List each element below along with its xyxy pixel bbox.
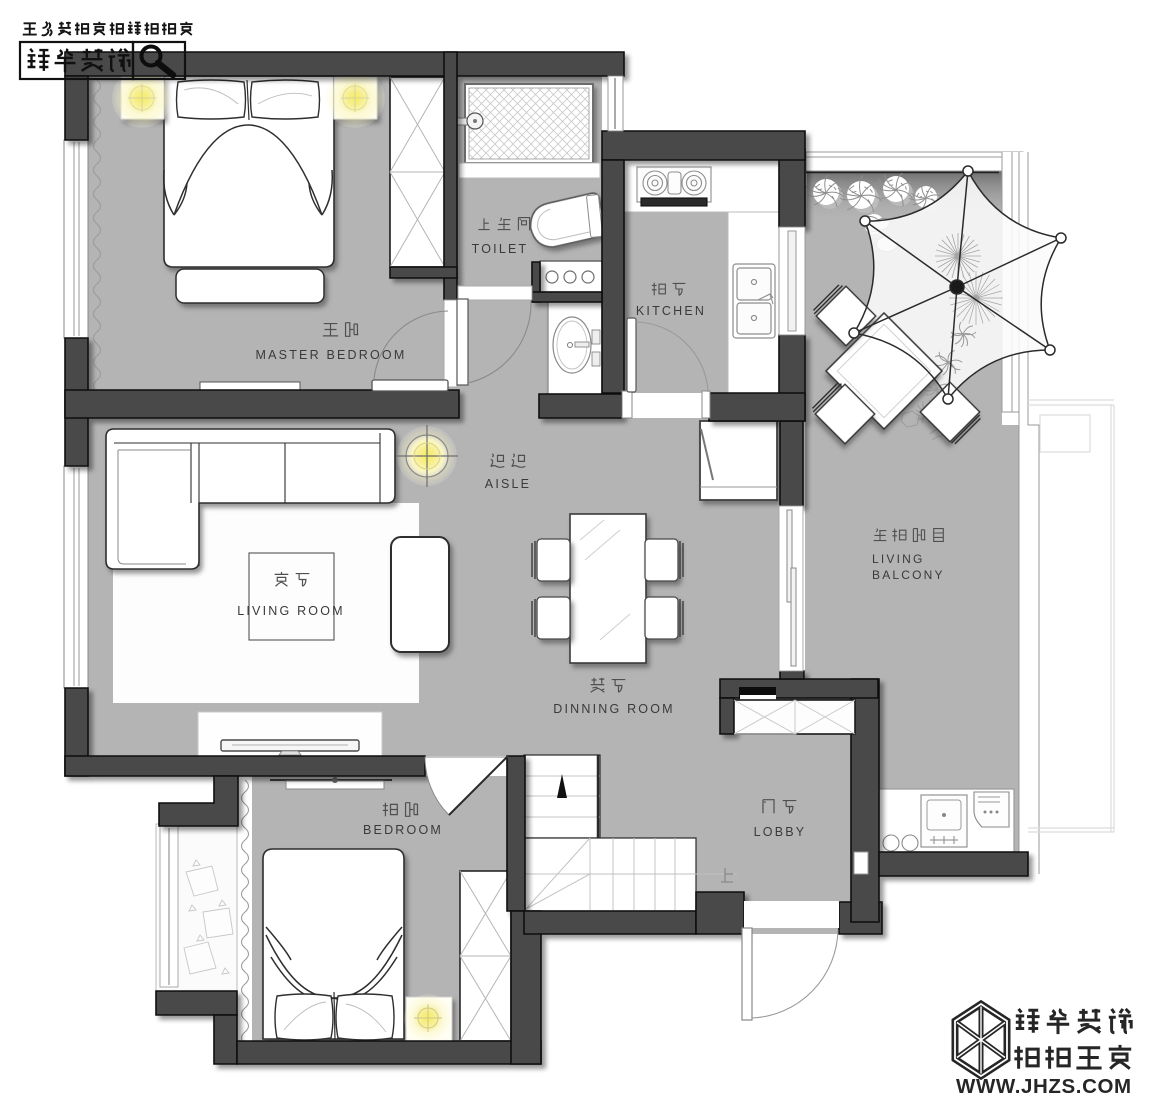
svg-text:LOBBY: LOBBY <box>754 825 807 839</box>
svg-text:KITCHEN: KITCHEN <box>636 304 706 318</box>
svg-text:TOILET: TOILET <box>472 242 529 256</box>
svg-text:LIVING ROOM: LIVING ROOM <box>237 604 345 618</box>
svg-text:WWW.JHZS.COM: WWW.JHZS.COM <box>956 1075 1132 1098</box>
svg-text:BALCONY: BALCONY <box>872 568 945 582</box>
svg-text:AISLE: AISLE <box>485 477 531 491</box>
svg-text:MASTER BEDROOM: MASTER BEDROOM <box>256 348 407 362</box>
svg-text:DINNING ROOM: DINNING ROOM <box>553 702 675 716</box>
svg-text:BEDROOM: BEDROOM <box>363 823 443 837</box>
svg-text:LIVING: LIVING <box>872 552 925 566</box>
